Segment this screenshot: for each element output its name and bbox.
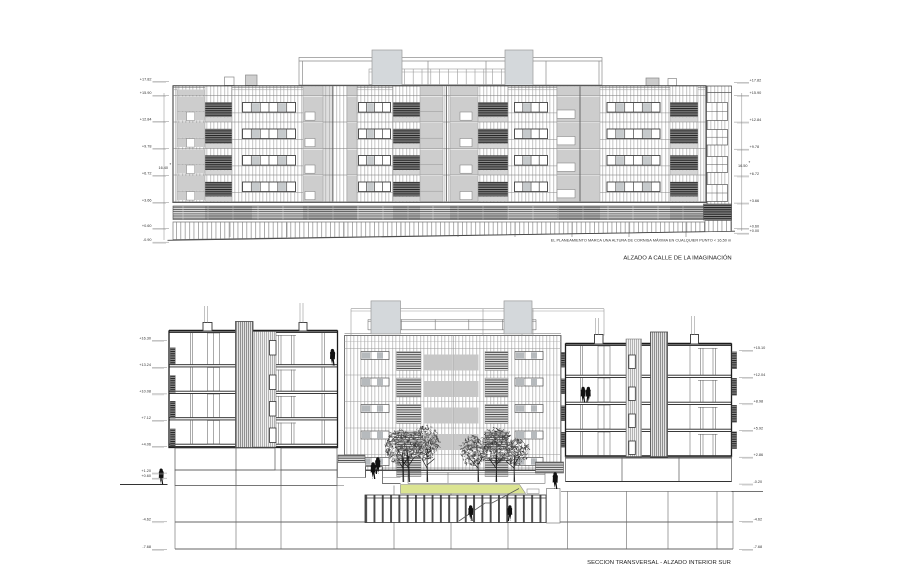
svg-text:+15.10: +15.10 [754,346,766,350]
svg-text:+3.66: +3.66 [142,198,152,202]
svg-text:+4.06: +4.06 [141,442,151,446]
svg-text:-7.68: -7.68 [142,545,151,549]
svg-text:+9.78: +9.78 [750,145,760,149]
svg-text:+2.86: +2.86 [754,453,764,457]
svg-text:+1.20: +1.20 [141,469,151,473]
svg-text:SECCION TRANSVERSAL - ALZADO I: SECCION TRANSVERSAL - ALZADO INTERIOR SU… [587,560,731,566]
svg-text:+6.72: +6.72 [750,172,760,176]
svg-text:-7.68: -7.68 [754,545,763,549]
svg-text:+5.92: +5.92 [754,427,764,431]
svg-text:+0.00: +0.00 [750,229,760,233]
svg-text:EL PLANEAMIENTO MARCA UNA ALTU: EL PLANEAMIENTO MARCA UNA ALTURA DE CORN… [551,237,732,242]
svg-text:16.50: 16.50 [738,164,748,168]
svg-text:*: * [749,160,751,165]
svg-text:+15.90: +15.90 [140,91,152,95]
svg-text:-0.20: -0.20 [754,480,763,484]
svg-text:-4.62: -4.62 [142,518,151,522]
svg-text:+12.84: +12.84 [750,118,762,122]
svg-text:+0.60: +0.60 [750,224,760,228]
svg-text:+13.24: +13.24 [139,363,151,367]
svg-text:16.40: 16.40 [158,166,168,170]
svg-text:+8.98: +8.98 [754,400,764,404]
svg-text:ALZADO A CALLE DE LA IMAGINACI: ALZADO A CALLE DE LA IMAGINACIÓN [623,255,731,262]
svg-text:+9.78: +9.78 [142,144,152,148]
svg-text:+3.66: +3.66 [750,199,760,203]
svg-text:+12.84: +12.84 [140,117,152,121]
svg-text:-4.62: -4.62 [754,518,763,522]
svg-text:+16.30: +16.30 [139,336,151,340]
svg-text:+6.72: +6.72 [142,171,152,175]
svg-text:+0.60: +0.60 [142,224,152,228]
svg-text:+0.60: +0.60 [141,474,151,478]
svg-text:-0.90: -0.90 [143,238,152,242]
svg-text:*: * [170,162,172,167]
svg-text:+12.04: +12.04 [754,373,766,377]
svg-text:+17.82: +17.82 [750,78,762,82]
svg-text:+7.12: +7.12 [141,416,151,420]
svg-text:+15.90: +15.90 [750,91,762,95]
svg-text:+10.08: +10.08 [139,390,151,394]
svg-text:+17.82: +17.82 [140,77,152,81]
